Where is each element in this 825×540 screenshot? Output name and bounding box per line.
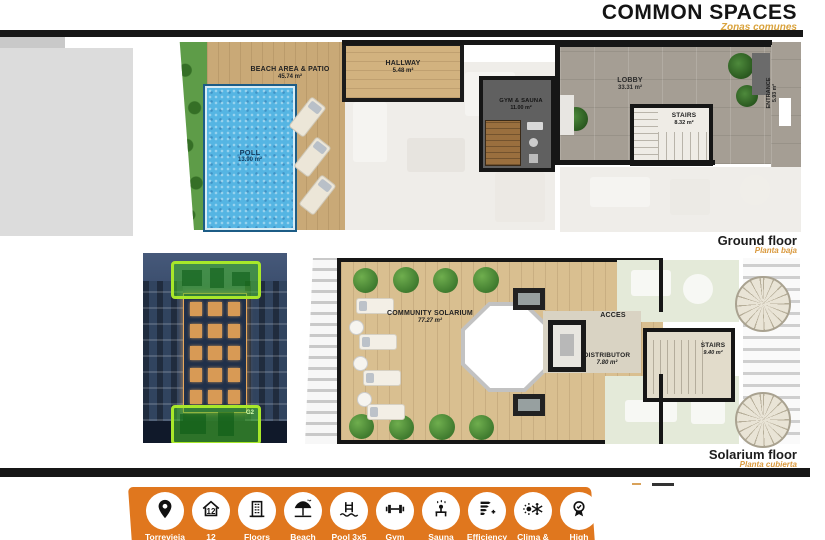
- pool-ladder-icon: [338, 498, 360, 525]
- acces-label: ACCES: [583, 312, 643, 320]
- partial-mark: [652, 483, 674, 486]
- gym-label: GYM & SAUNA 11.00 m²: [493, 98, 549, 111]
- plant: [393, 267, 419, 293]
- wall: [555, 160, 715, 165]
- amenity-12: 12 12: [188, 487, 234, 540]
- ghost-furniture: [670, 179, 710, 215]
- amenity-sauna: Sauna: [418, 487, 464, 540]
- wall: [659, 258, 663, 312]
- side-table: [353, 356, 368, 371]
- photo-badge: G2: [246, 410, 254, 416]
- ground-floor-caption-sub: Planta baja: [755, 246, 797, 255]
- ground-stairs: STAIRS 8.32 m²: [630, 104, 713, 166]
- hallway-label: HALLWAY 5.48 m²: [346, 60, 460, 76]
- location-pin-icon: [154, 498, 176, 525]
- ghost-furniture: [631, 270, 671, 296]
- pergola-slats-left: [305, 258, 341, 444]
- ghost-furniture: [683, 274, 713, 304]
- solarium-highlight-box: [171, 261, 261, 299]
- side-building: [245, 281, 287, 421]
- ghost-furniture: [590, 177, 650, 207]
- sun-lounger: [367, 404, 405, 420]
- entrance-label: ENTRANCE 5.93 m²: [766, 58, 778, 128]
- gym-equipment: [529, 138, 538, 147]
- efficiency-icon: [476, 498, 498, 525]
- beach-area-label: BEACH AREA & PATIO 45.74 m²: [225, 66, 355, 82]
- side-building: [143, 281, 183, 421]
- plant: [429, 414, 455, 440]
- header-divider-bar: [0, 30, 803, 37]
- ghost-furniture: [740, 175, 770, 205]
- spiral-stair: [735, 392, 791, 448]
- amenity-torrevieja: Torrevieja: [142, 487, 188, 540]
- gym-equipment: [527, 122, 543, 130]
- stair-treads: [634, 108, 658, 162]
- dumbbell-icon: [384, 498, 406, 525]
- amenity-pool: Pool 3x5: [326, 487, 372, 540]
- main-building: [183, 293, 247, 413]
- side-table: [349, 320, 364, 335]
- ghost-furniture: [353, 102, 387, 162]
- hallway: HALLWAY 5.48 m²: [342, 42, 464, 102]
- footer-divider-bar: [0, 468, 810, 477]
- building-night-photo: G2: [143, 253, 287, 443]
- gym-equipment: [529, 154, 538, 163]
- plant: [473, 267, 499, 293]
- sun-lounger: [359, 334, 397, 350]
- amenity-high: High: [556, 487, 602, 540]
- roof-vent: [513, 288, 545, 310]
- plant: [469, 415, 494, 440]
- ground-floor-plan: BEACH AREA & PATIO 45.74 m² POLL 13.90 m…: [143, 40, 803, 232]
- plant: [353, 268, 378, 293]
- entrance-door: [779, 98, 791, 126]
- climate-icon: [522, 498, 544, 525]
- solarium-stairs-label: STAIRS 9.40 m²: [695, 342, 731, 357]
- wall: [659, 374, 663, 444]
- roof-vent: [513, 394, 545, 416]
- page-edge-shade: [0, 37, 65, 48]
- pool-label: POLL 13.90 m²: [207, 148, 293, 164]
- partial-mark: [632, 483, 641, 485]
- reception-desk: [560, 95, 574, 135]
- plant: [433, 268, 458, 293]
- brochure-page: COMMON SPACES Zonas comunes BEACH AREA &…: [0, 0, 825, 540]
- stair-treads: [658, 132, 709, 162]
- house-number: 12: [192, 507, 230, 516]
- amenities-row: Torrevieja 12 12 Floors Beach Pool 3x5: [130, 487, 602, 540]
- ghost-furniture: [625, 400, 677, 422]
- ghost-living-area: [560, 167, 801, 232]
- amenity-gym: Gym: [372, 487, 418, 540]
- building-icon: [246, 498, 268, 525]
- distributor-label: DISTRIBUTOR 7.80 m²: [571, 352, 643, 367]
- ground-stairs-label: STAIRS 8.32 m²: [660, 112, 708, 127]
- page-edge-shade: [0, 48, 133, 236]
- plant: [728, 53, 754, 79]
- amenity-efficiency: Efficiency: [464, 487, 510, 540]
- amenity-beach: Beach: [280, 487, 326, 540]
- award-icon: [568, 498, 590, 525]
- solarium-stairs: STAIRS 9.40 m²: [643, 328, 735, 402]
- wall: [342, 40, 772, 45]
- solarium-floor-plan: COMMUNITY SOLARIUM 77.27 m² ACCES: [305, 256, 800, 446]
- ghost-furniture: [407, 138, 465, 172]
- pool: POLL 13.90 m²: [207, 88, 293, 228]
- ghost-furniture: [495, 172, 545, 222]
- amenity-clima: Clima &: [510, 487, 556, 540]
- sauna-icon: [430, 498, 452, 525]
- sun-lounger: [363, 370, 401, 386]
- amenity-floors: Floors: [234, 487, 280, 540]
- spiral-stair: [735, 276, 791, 332]
- beach-umbrella-icon: [292, 498, 314, 525]
- ground-highlight-box: G2: [171, 405, 261, 443]
- garden-strip: [176, 42, 207, 230]
- sauna-cabin: [485, 120, 521, 166]
- gym-sauna-room: GYM & SAUNA 11.00 m²: [479, 76, 555, 172]
- lobby-label: LOBBY 33.31 m²: [600, 77, 660, 93]
